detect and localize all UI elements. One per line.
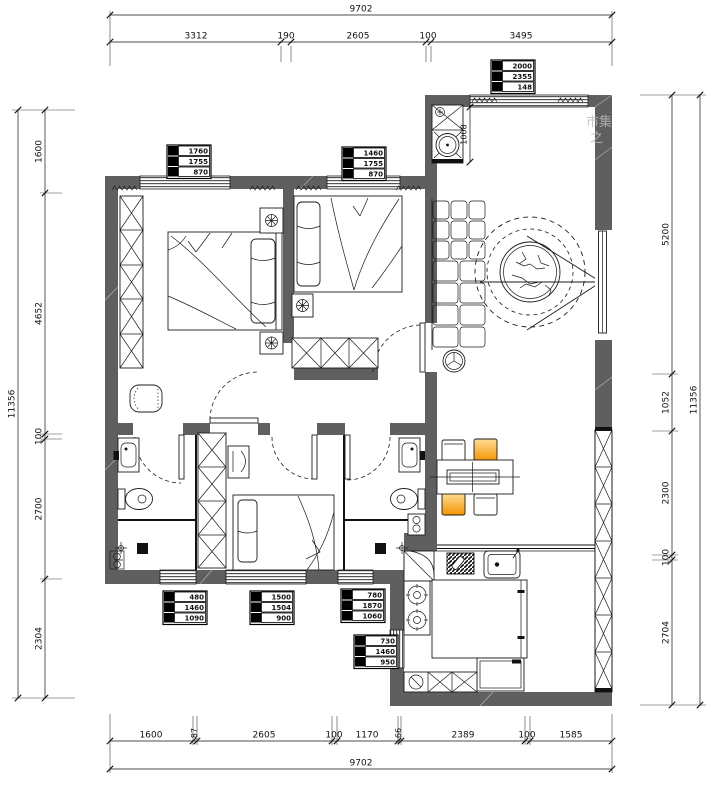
fridge-symbol: [477, 658, 524, 691]
tag-value: 1460: [185, 604, 205, 612]
floor-plan-drawing: 9702 3312 190 2605 100 3495 9702 1600 87…: [0, 0, 720, 793]
dim-left-2: 4652: [35, 302, 45, 325]
dining-chair-orange: [474, 439, 497, 461]
dim-left-3: 100: [35, 428, 45, 445]
dim-right-total: 11356: [690, 385, 700, 414]
nightstand-lamp-symbol: [292, 294, 313, 317]
bedroom1-door: [210, 372, 258, 423]
tag-value: 1760: [189, 148, 209, 156]
tag-value: 1500: [272, 594, 292, 602]
tag-value: 870: [368, 171, 383, 179]
kitchen-island-symbol: [432, 580, 527, 658]
dim-bottom-6: 66: [394, 728, 403, 738]
bath-right-door: [345, 435, 390, 480]
window-tag-bath-right: 780 1870 1060: [341, 589, 385, 623]
floor-plan-canvas: 9702 3312 190 2605 100 3495 9702 1600 87…: [0, 0, 720, 793]
dim-right-3: 2300: [662, 481, 672, 504]
dim-bottom-9: 1585: [560, 731, 583, 741]
tag-value: 780: [367, 592, 382, 600]
dim-top-total: 9702: [350, 5, 373, 15]
tag-value: 900: [276, 615, 291, 623]
stove-symbol: [404, 581, 430, 635]
tag-value: 1870: [363, 602, 383, 610]
watermark-text: 市集: [586, 114, 612, 130]
tv-symbol: [595, 230, 612, 340]
dim-bottom-8: 100: [518, 731, 535, 741]
toilet-symbol: [118, 489, 153, 510]
tag-value: 1090: [185, 615, 205, 623]
bedroom2-door: [373, 323, 425, 372]
watermark-text: 之: [590, 131, 603, 146]
tag-value: 480: [189, 594, 204, 602]
round-coffee-table-rug: [475, 217, 585, 327]
partitions: [118, 435, 595, 570]
dim-left-total: 11356: [8, 389, 18, 418]
kitchen-sink-symbol: [484, 549, 520, 578]
dim-bottom-total: 9702: [350, 759, 373, 769]
sofa-symbol: [432, 199, 485, 350]
side-stool-symbol: [443, 350, 465, 372]
bath-left-door: [135, 435, 184, 483]
tag-value: 1504: [272, 604, 292, 612]
dim-right-5: 2704: [662, 621, 672, 644]
bedroom3-window: [226, 570, 306, 584]
tag-value: 870: [193, 169, 208, 177]
window-tag-kitchen: 730 1460 950: [354, 635, 398, 669]
bath-right-window: [338, 570, 373, 584]
dim-top-3: 2605: [347, 32, 370, 42]
dim-bottom-7: 2389: [452, 731, 475, 741]
dining-chair-white: [474, 494, 497, 515]
entry-cabinet-washer-symbol: [432, 105, 463, 163]
kitchen: [404, 549, 595, 692]
single-bed-symbol: [233, 495, 334, 570]
double-bed-symbol: [168, 232, 282, 330]
tag-value: 2000: [513, 63, 533, 71]
dim-bottom-2: 87: [190, 728, 199, 738]
sink-symbol: [399, 438, 425, 472]
toilet-symbol: [391, 489, 426, 510]
window-tag-bedroom2: 1460 1755 870: [342, 147, 386, 181]
tag-value: 2355: [513, 73, 533, 81]
window-tag-bath-left: 480 1460 1090: [163, 591, 207, 625]
dining-area: [430, 439, 520, 515]
base-cabinets-symbol: [404, 672, 477, 692]
double-bed-symbol: [294, 196, 402, 292]
wardrobe-symbol: [292, 338, 378, 368]
corner-cabinet-symbol: [404, 551, 434, 581]
tag-value: 1460: [364, 150, 384, 158]
dim-top-2: 190: [277, 32, 294, 42]
right-wall-hatched: [595, 427, 612, 692]
tag-value: 148: [517, 84, 532, 92]
window-tag-living: 2000 2355 148: [491, 60, 535, 94]
tag-value: 730: [380, 638, 395, 646]
dim-bottom-3: 2605: [253, 731, 276, 741]
dining-chair-white: [442, 440, 465, 461]
dim-left-1: 1600: [35, 140, 45, 163]
tag-value: 1755: [189, 158, 209, 166]
dim-right-4: 100: [662, 549, 672, 566]
armchair-symbol: [130, 385, 162, 412]
bath-left-window: [160, 570, 196, 584]
dim-bottom-5: 1170: [356, 731, 379, 741]
dim-top-5: 3495: [510, 32, 533, 42]
dining-chair-orange: [442, 493, 465, 515]
dim-right-1: 5200: [662, 223, 672, 246]
dim-top-4: 100: [419, 32, 436, 42]
cutting-board-symbol: [447, 553, 474, 574]
tag-value: 1460: [376, 648, 396, 656]
window-tag-bedroom1: 1760 1755 870: [167, 145, 211, 179]
dim-left-5: 2304: [35, 627, 45, 650]
master-bedroom: [120, 196, 283, 412]
tag-value: 1060: [363, 613, 383, 621]
dim-bottom-4: 100: [325, 731, 342, 741]
dim-right-2: 1052: [662, 391, 672, 414]
dim-entry-cabinet: 1008: [460, 124, 469, 144]
wardrobe-symbol: [198, 433, 226, 568]
desk-chair-symbol: [228, 446, 249, 478]
tag-value: 950: [380, 659, 395, 667]
tag-value: 1755: [364, 160, 384, 168]
wardrobe-symbol: [120, 196, 143, 368]
window-tag-bedroom3: 1500 1504 900: [250, 591, 294, 625]
dim-bottom-1: 1600: [140, 731, 163, 741]
bedroom3-door: [272, 435, 317, 479]
bedroom2: [292, 196, 402, 368]
dim-left-4: 2700: [35, 497, 45, 520]
dim-top-1: 3312: [185, 32, 208, 42]
